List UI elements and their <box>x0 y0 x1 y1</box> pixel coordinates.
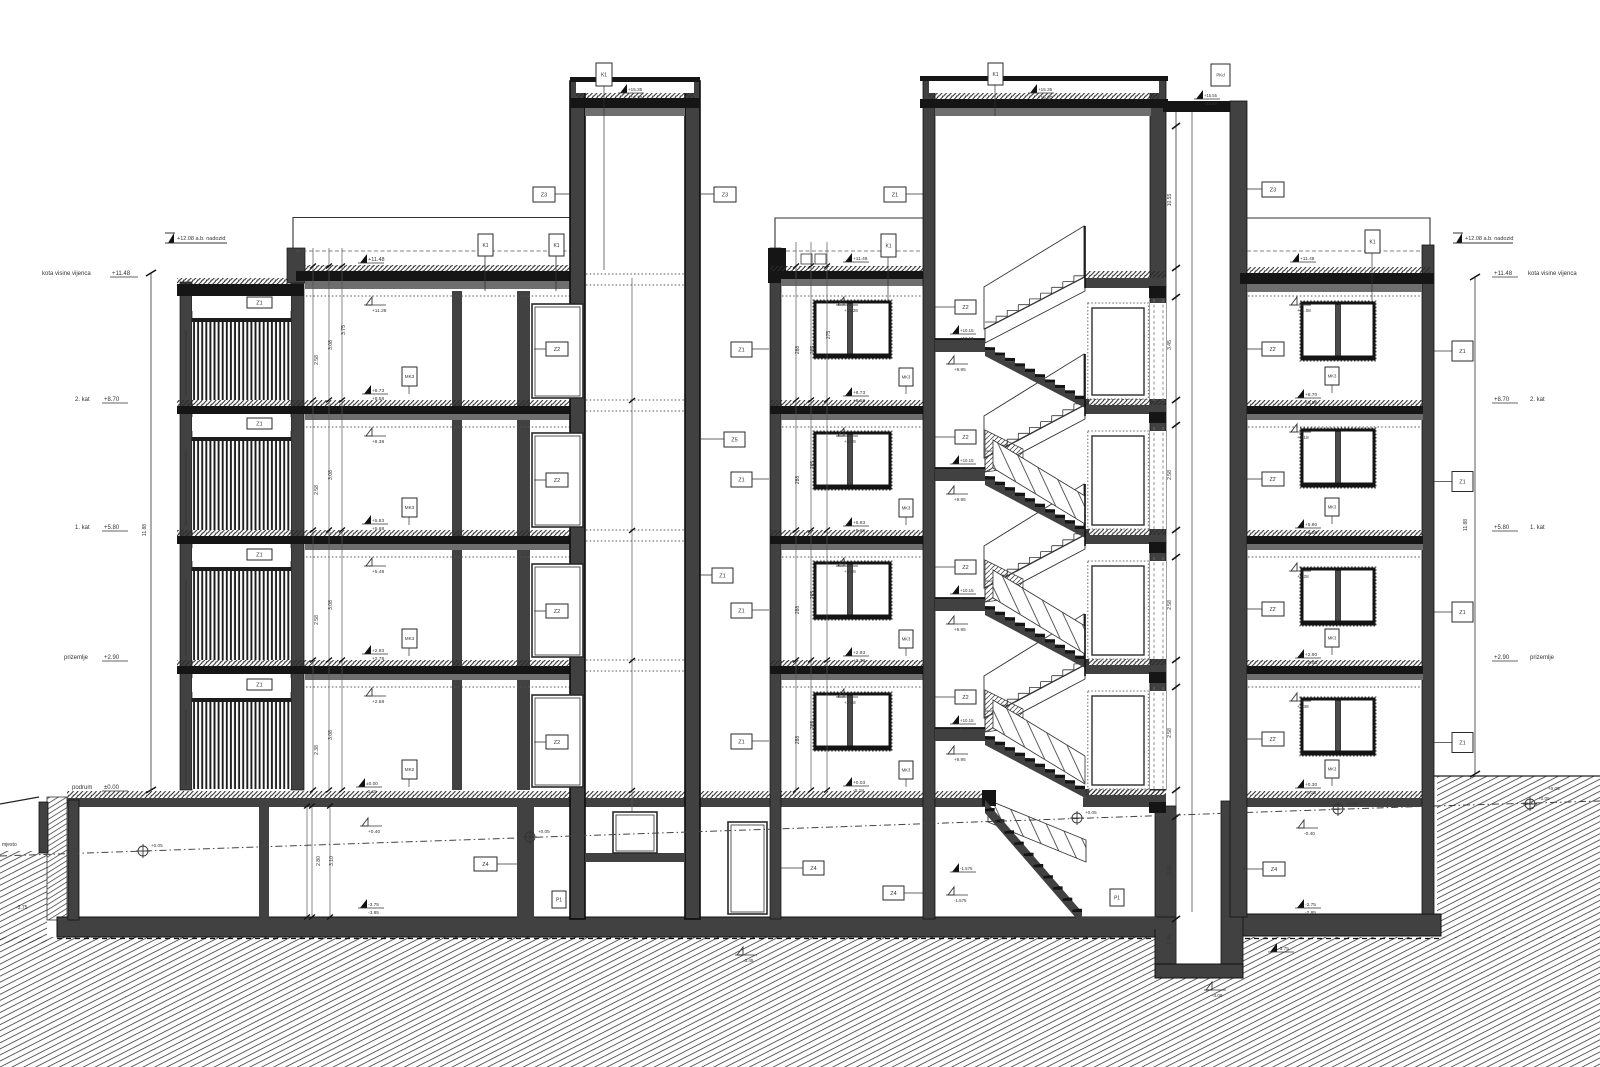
svg-text:+10.10: +10.10 <box>960 466 974 471</box>
svg-text:-3.45: -3.45 <box>743 958 754 963</box>
svg-text:+9.95: +9.95 <box>954 497 966 502</box>
svg-text:MK3: MK3 <box>902 637 911 642</box>
svg-text:-2.75: -2.75 <box>1305 902 1316 908</box>
svg-text:+10.10: +10.10 <box>960 726 974 731</box>
svg-text:+0.05: +0.05 <box>1538 796 1550 801</box>
svg-text:+11.08: +11.08 <box>1297 308 1311 313</box>
svg-text:Z1: Z1 <box>1459 479 1465 485</box>
svg-text:2. kat: 2. kat <box>75 397 90 403</box>
svg-text:+8.58: +8.58 <box>372 396 384 402</box>
svg-text:288: 288 <box>795 346 801 355</box>
svg-text:+15.55: +15.55 <box>1204 93 1218 98</box>
svg-text:-3.75: -3.75 <box>1278 946 1289 952</box>
svg-text:+0.30: +0.30 <box>1305 782 1317 788</box>
svg-text:1. kat: 1. kat <box>75 525 90 531</box>
svg-text:3.10: 3.10 <box>329 856 335 866</box>
svg-text:MK3: MK3 <box>1328 374 1337 379</box>
svg-text:Z2: Z2 <box>962 435 968 441</box>
svg-text:288: 288 <box>795 736 801 745</box>
svg-text:P1: P1 <box>1114 895 1120 901</box>
svg-text:kota visine vijenca: kota visine vijenca <box>42 271 91 277</box>
svg-text:2.58: 2.58 <box>314 485 320 495</box>
svg-text:MK2: MK2 <box>405 767 415 772</box>
svg-text:+11.48: +11.48 <box>112 271 131 277</box>
svg-text:MK3: MK3 <box>902 506 911 511</box>
svg-text:+5.48: +5.48 <box>844 569 856 574</box>
svg-text:+15.50: +15.50 <box>1204 101 1218 106</box>
svg-text:Z2: Z2 <box>554 478 560 484</box>
svg-text:+11.28: +11.28 <box>372 308 387 314</box>
svg-text:prizemlje: prizemlje <box>1530 655 1555 661</box>
svg-text:1.45: 1.45 <box>1167 935 1173 945</box>
svg-text:Z1: Z1 <box>1459 349 1465 355</box>
svg-text:+9.95: +9.95 <box>954 627 966 632</box>
svg-text:2.58: 2.58 <box>1167 728 1173 738</box>
svg-text:+11.48: +11.48 <box>1494 271 1513 277</box>
svg-text:-1.575: -1.575 <box>954 898 967 903</box>
svg-text:+10.15: +10.15 <box>960 458 974 463</box>
svg-text:MK3: MK3 <box>405 505 415 510</box>
svg-text:3.08: 3.08 <box>328 600 334 610</box>
svg-text:Z1: Z1 <box>738 608 744 614</box>
svg-text:+5.08: +5.08 <box>1305 530 1317 536</box>
svg-text:3.45: 3.45 <box>1167 340 1173 350</box>
svg-text:podrum: podrum <box>72 785 92 791</box>
svg-text:+9.95: +9.95 <box>954 757 966 762</box>
svg-text:kota visine vijenca: kota visine vijenca <box>1528 271 1577 277</box>
svg-text:Z4: Z4 <box>1271 867 1277 873</box>
svg-text:Z2': Z2' <box>1270 737 1277 743</box>
svg-text:+5.83: +5.83 <box>372 518 384 524</box>
svg-text:K1: K1 <box>992 72 998 78</box>
svg-text:Z3: Z3 <box>722 192 728 198</box>
svg-text:Z2: Z2 <box>554 347 560 353</box>
svg-text:+2.38: +2.38 <box>1297 704 1309 709</box>
svg-text:+5.80: +5.80 <box>1305 522 1317 528</box>
svg-text:+2.90: +2.90 <box>104 655 120 661</box>
svg-text:2.80: 2.80 <box>316 856 322 866</box>
svg-text:-0.15: -0.15 <box>1305 790 1316 796</box>
svg-text:+12.08 a.b. nadozid: +12.08 a.b. nadozid <box>1465 236 1513 242</box>
svg-text:2.58: 2.58 <box>314 355 320 365</box>
svg-text:-0.15: -0.15 <box>366 789 377 795</box>
svg-text:Z2: Z2 <box>962 305 968 311</box>
svg-text:265: 265 <box>810 591 816 600</box>
svg-text:+0.05: +0.05 <box>1085 810 1097 815</box>
svg-text:-3.75: -3.75 <box>16 905 28 911</box>
svg-text:+11.48: +11.48 <box>853 256 868 262</box>
svg-text:+5.28: +5.28 <box>1297 574 1309 579</box>
svg-text:MK3: MK3 <box>405 374 415 379</box>
svg-text:+11.28: +11.28 <box>844 308 858 313</box>
svg-text:Z1: Z1 <box>719 573 725 579</box>
svg-text:K1: K1 <box>1369 239 1375 245</box>
svg-text:MK3: MK3 <box>1328 767 1337 772</box>
svg-text:Z2: Z2 <box>554 609 560 615</box>
svg-text:-0.40: -0.40 <box>1304 831 1315 837</box>
svg-text:2.38: 2.38 <box>314 745 320 755</box>
svg-text:+2.58: +2.58 <box>844 700 856 705</box>
svg-text:+5.83: +5.83 <box>853 520 865 526</box>
svg-text:+8.73: +8.73 <box>853 390 865 396</box>
svg-text:-3.85: -3.85 <box>368 910 379 916</box>
svg-text:+11.48: +11.48 <box>1300 256 1315 262</box>
svg-text:Z1: Z1 <box>256 682 262 688</box>
svg-text:Z1: Z1 <box>738 739 744 745</box>
svg-text:+10.15: +10.15 <box>960 718 974 723</box>
svg-text:288: 288 <box>795 606 801 615</box>
svg-text:2.58: 2.58 <box>1167 470 1173 480</box>
svg-text:288: 288 <box>795 476 801 485</box>
svg-text:Z4: Z4 <box>810 866 816 872</box>
svg-text:Z3: Z3 <box>1270 187 1276 193</box>
svg-text:K1: K1 <box>553 243 559 249</box>
svg-text:MK3: MK3 <box>1328 505 1337 510</box>
svg-text:+8.70: +8.70 <box>1305 392 1317 398</box>
svg-text:+2.08: +2.08 <box>1305 660 1317 666</box>
svg-text:+0.40: +0.40 <box>368 829 380 835</box>
svg-text:Z1: Z1 <box>892 192 898 198</box>
svg-text:265: 265 <box>810 346 816 355</box>
svg-text:+11.48: +11.48 <box>368 257 385 263</box>
svg-text:+8.08: +8.08 <box>1305 400 1317 406</box>
svg-text:+10.10: +10.10 <box>960 596 974 601</box>
svg-text:+8.70: +8.70 <box>1494 397 1510 403</box>
svg-text:3.75: 3.75 <box>341 325 347 335</box>
svg-text:10.55: 10.55 <box>1167 194 1173 207</box>
svg-text:Z2: Z2 <box>962 565 968 571</box>
svg-text:Z1: Z1 <box>256 552 262 558</box>
svg-text:+2.78: +2.78 <box>372 656 384 662</box>
svg-text:+2.90: +2.90 <box>1305 652 1317 658</box>
svg-text:11.88: 11.88 <box>1463 519 1469 531</box>
svg-text:MK3: MK3 <box>902 375 911 380</box>
svg-text:Z5: Z5 <box>731 437 737 443</box>
svg-text:+10.10: +10.10 <box>960 336 974 341</box>
svg-text:Z2: Z2 <box>962 695 968 701</box>
svg-text:+5.48: +5.48 <box>372 569 384 575</box>
svg-text:MK3: MK3 <box>405 636 415 641</box>
svg-text:+10.15: +10.15 <box>960 328 974 333</box>
svg-text:2.58: 2.58 <box>314 615 320 625</box>
svg-text:MK3: MK3 <box>1328 636 1337 641</box>
svg-text:2. kat: 2. kat <box>1530 397 1545 403</box>
svg-text:-0.18: -0.18 <box>853 788 864 794</box>
svg-text:+8.18: +8.18 <box>1297 435 1309 440</box>
svg-text:Z1: Z1 <box>256 300 262 306</box>
svg-text:+5.80: +5.80 <box>1494 525 1510 531</box>
svg-text:+2.78: +2.78 <box>853 658 865 664</box>
svg-text:Z1: Z1 <box>256 421 262 427</box>
svg-text:Z1: Z1 <box>1459 740 1465 746</box>
svg-text:-2.85: -2.85 <box>1305 910 1316 916</box>
svg-text:K1: K1 <box>885 243 891 249</box>
svg-text:+2.93: +2.93 <box>853 650 865 656</box>
svg-text:265: 265 <box>810 721 816 730</box>
svg-text:+10.15: +10.15 <box>960 588 974 593</box>
svg-text:Z4: Z4 <box>482 862 488 868</box>
svg-text:2.60: 2.60 <box>1167 865 1173 875</box>
svg-text:+2.93: +2.93 <box>372 648 384 654</box>
svg-text:+0.03: +0.03 <box>853 780 865 786</box>
svg-text:Z2': Z2' <box>1270 607 1277 613</box>
svg-text:+2.90: +2.90 <box>1494 655 1510 661</box>
svg-text:+8.73: +8.73 <box>372 388 384 394</box>
svg-text:Z2': Z2' <box>1270 477 1277 483</box>
svg-text:K1: K1 <box>482 243 488 249</box>
svg-text:±0.00: ±0.00 <box>366 781 378 787</box>
svg-text:265: 265 <box>810 461 816 470</box>
svg-text:+0.05: +0.05 <box>538 829 550 834</box>
svg-text:Z2': Z2' <box>1270 347 1277 353</box>
svg-text:+8.58: +8.58 <box>853 398 865 404</box>
svg-text:+8.70: +8.70 <box>104 397 120 403</box>
svg-text:275: 275 <box>826 331 832 340</box>
svg-text:3.08: 3.08 <box>328 730 334 740</box>
svg-text:K1: K1 <box>601 72 607 78</box>
svg-text:-4.08: -4.08 <box>1212 993 1223 998</box>
svg-text:-3.75: -3.75 <box>368 902 379 908</box>
svg-text:±0.00: ±0.00 <box>104 785 120 791</box>
svg-text:Z1: Z1 <box>738 347 744 353</box>
svg-text:prizemlje: prizemlje <box>64 655 89 661</box>
svg-text:Z3: Z3 <box>541 192 547 198</box>
svg-text:+5.68: +5.68 <box>853 528 865 534</box>
svg-text:+12.08 a.b. nadozid: +12.08 a.b. nadozid <box>177 236 225 242</box>
svg-text:+15.30: +15.30 <box>1038 95 1053 100</box>
svg-text:P1: P1 <box>556 897 562 903</box>
svg-text:11.88: 11.88 <box>142 524 148 536</box>
svg-text:+15.30: +15.30 <box>628 95 643 100</box>
svg-text:3.08: 3.08 <box>328 470 334 480</box>
svg-text:+9.95: +9.95 <box>954 367 966 372</box>
svg-text:Z1: Z1 <box>1459 610 1465 616</box>
svg-text:Z2: Z2 <box>554 740 560 746</box>
svg-text:MK3: MK3 <box>902 768 911 773</box>
svg-text:2.58: 2.58 <box>1167 600 1173 610</box>
svg-text:+8.38: +8.38 <box>844 439 856 444</box>
svg-text:-1.575: -1.575 <box>960 866 973 871</box>
svg-text:Z1: Z1 <box>738 477 744 483</box>
svg-text:+0.05: +0.05 <box>151 843 163 848</box>
svg-text:1. kat: 1. kat <box>1530 525 1545 531</box>
svg-text:+5.80: +5.80 <box>104 525 120 531</box>
svg-text:+0.05: +0.05 <box>1548 786 1560 791</box>
svg-text:3.08: 3.08 <box>328 340 334 350</box>
svg-text:+8.38: +8.38 <box>372 439 384 445</box>
svg-text:+0.05: +0.05 <box>1346 801 1358 806</box>
svg-text:+2.58: +2.58 <box>372 699 384 705</box>
svg-text:+5.68: +5.68 <box>372 526 384 532</box>
svg-text:mjesto: mjesto <box>2 842 17 848</box>
svg-text:+15.35: +15.35 <box>1038 87 1053 92</box>
svg-text:+15.35: +15.35 <box>628 87 643 92</box>
svg-text:PKd: PKd <box>1216 73 1225 78</box>
svg-text:Z4: Z4 <box>890 891 896 897</box>
